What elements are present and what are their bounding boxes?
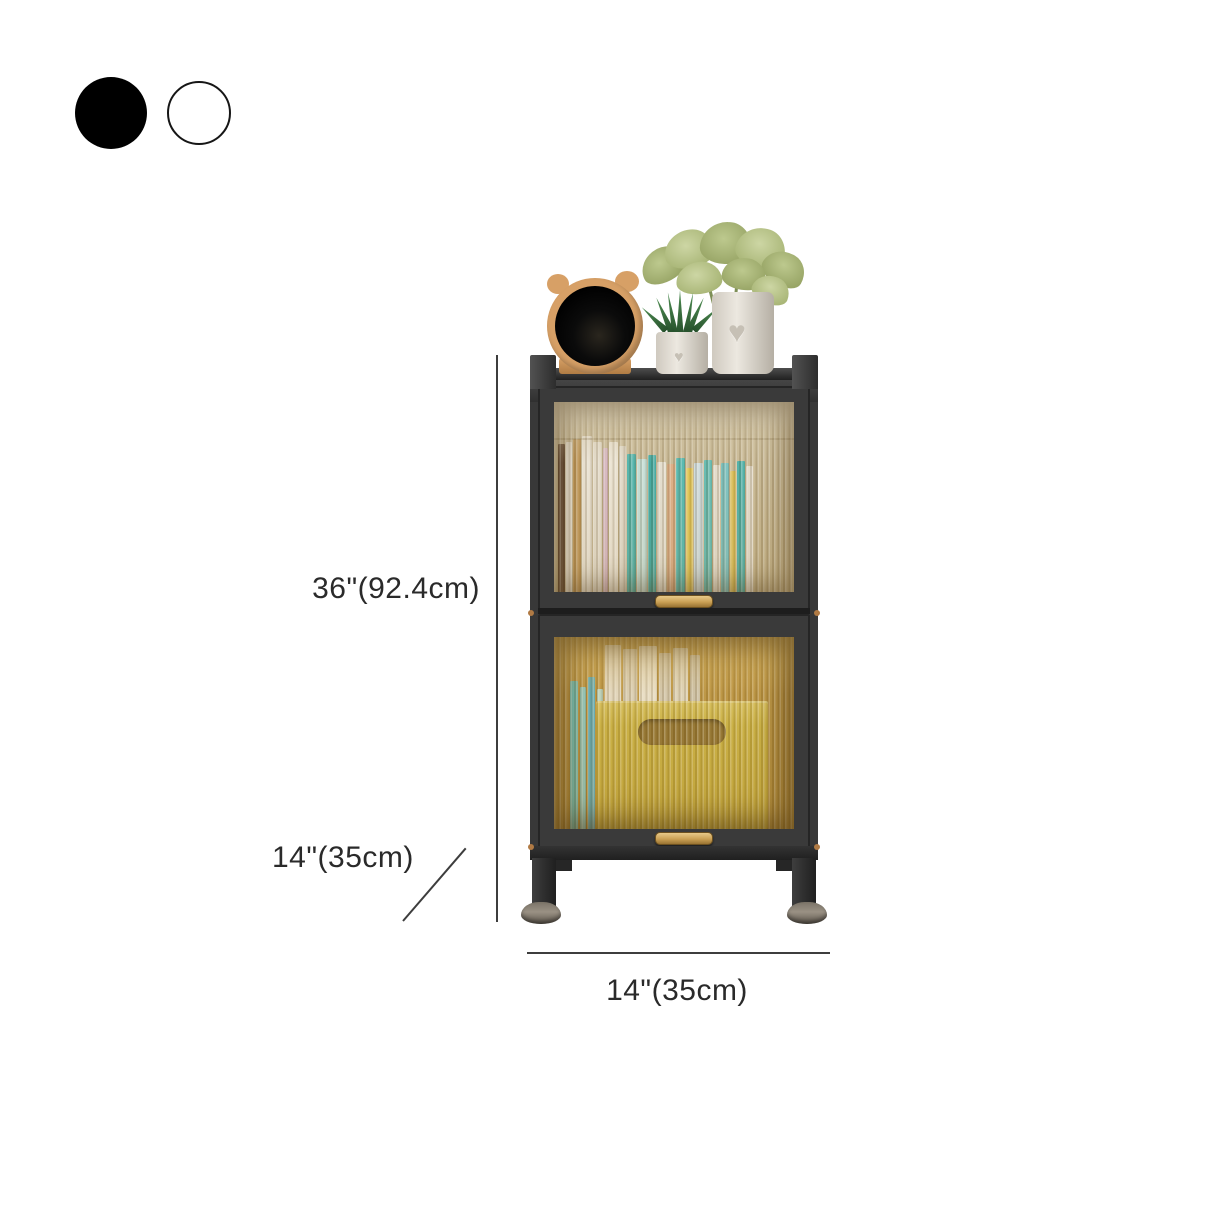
upper-door-handle <box>655 595 713 608</box>
cabinet-bottom-rail <box>530 846 818 860</box>
cabinet-leg-right <box>792 858 816 906</box>
hinge-pin-right-bottom <box>814 844 820 850</box>
lower-glass-tint <box>554 637 794 829</box>
height-dimension-line <box>496 355 498 922</box>
cabinet-post-left <box>530 355 556 389</box>
leg-bracket-left <box>556 860 572 871</box>
small-plant: ♥ <box>648 290 718 380</box>
upper-glass-tint <box>554 402 794 592</box>
upper-door-glass <box>554 402 794 592</box>
hinge-pin-right-mid <box>814 610 820 616</box>
small-plant-pot: ♥ <box>656 332 708 374</box>
plant-blade <box>676 290 684 334</box>
cabinet-foot-left <box>521 902 561 924</box>
lower-door-glass <box>554 637 794 829</box>
width-dimension-label: 14"(35cm) <box>567 974 787 1008</box>
cabinet-post-right <box>792 355 818 389</box>
bear-clock <box>547 266 643 376</box>
swatch-row <box>0 0 300 160</box>
heart-emboss-icon: ♥ <box>674 350 684 366</box>
bear-clock-face <box>555 286 635 366</box>
heart-emboss-icon: ♥ <box>728 318 746 348</box>
height-dimension-label: 36"(92.4cm) <box>300 572 480 606</box>
hinge-pin-left-bottom <box>528 844 534 850</box>
upper-door <box>538 386 810 610</box>
leg-bracket-right <box>776 860 792 871</box>
width-dimension-line <box>527 952 830 954</box>
cabinet-leg-left <box>532 858 556 906</box>
hinge-pin-left-mid <box>528 610 534 616</box>
color-swatch-black[interactable] <box>75 77 147 149</box>
cabinet-foot-right <box>787 902 827 924</box>
lower-door <box>538 614 810 852</box>
depth-dimension-label: 14"(35cm) <box>272 841 422 875</box>
product-dimension-image: 36"(92.4cm) 14"(35cm) 14"(35cm) <box>0 0 1214 1214</box>
lower-door-handle <box>655 832 713 845</box>
color-swatch-white[interactable] <box>167 81 231 145</box>
cabinet-body <box>530 368 818 860</box>
large-plant-pot: ♥ <box>712 292 774 374</box>
